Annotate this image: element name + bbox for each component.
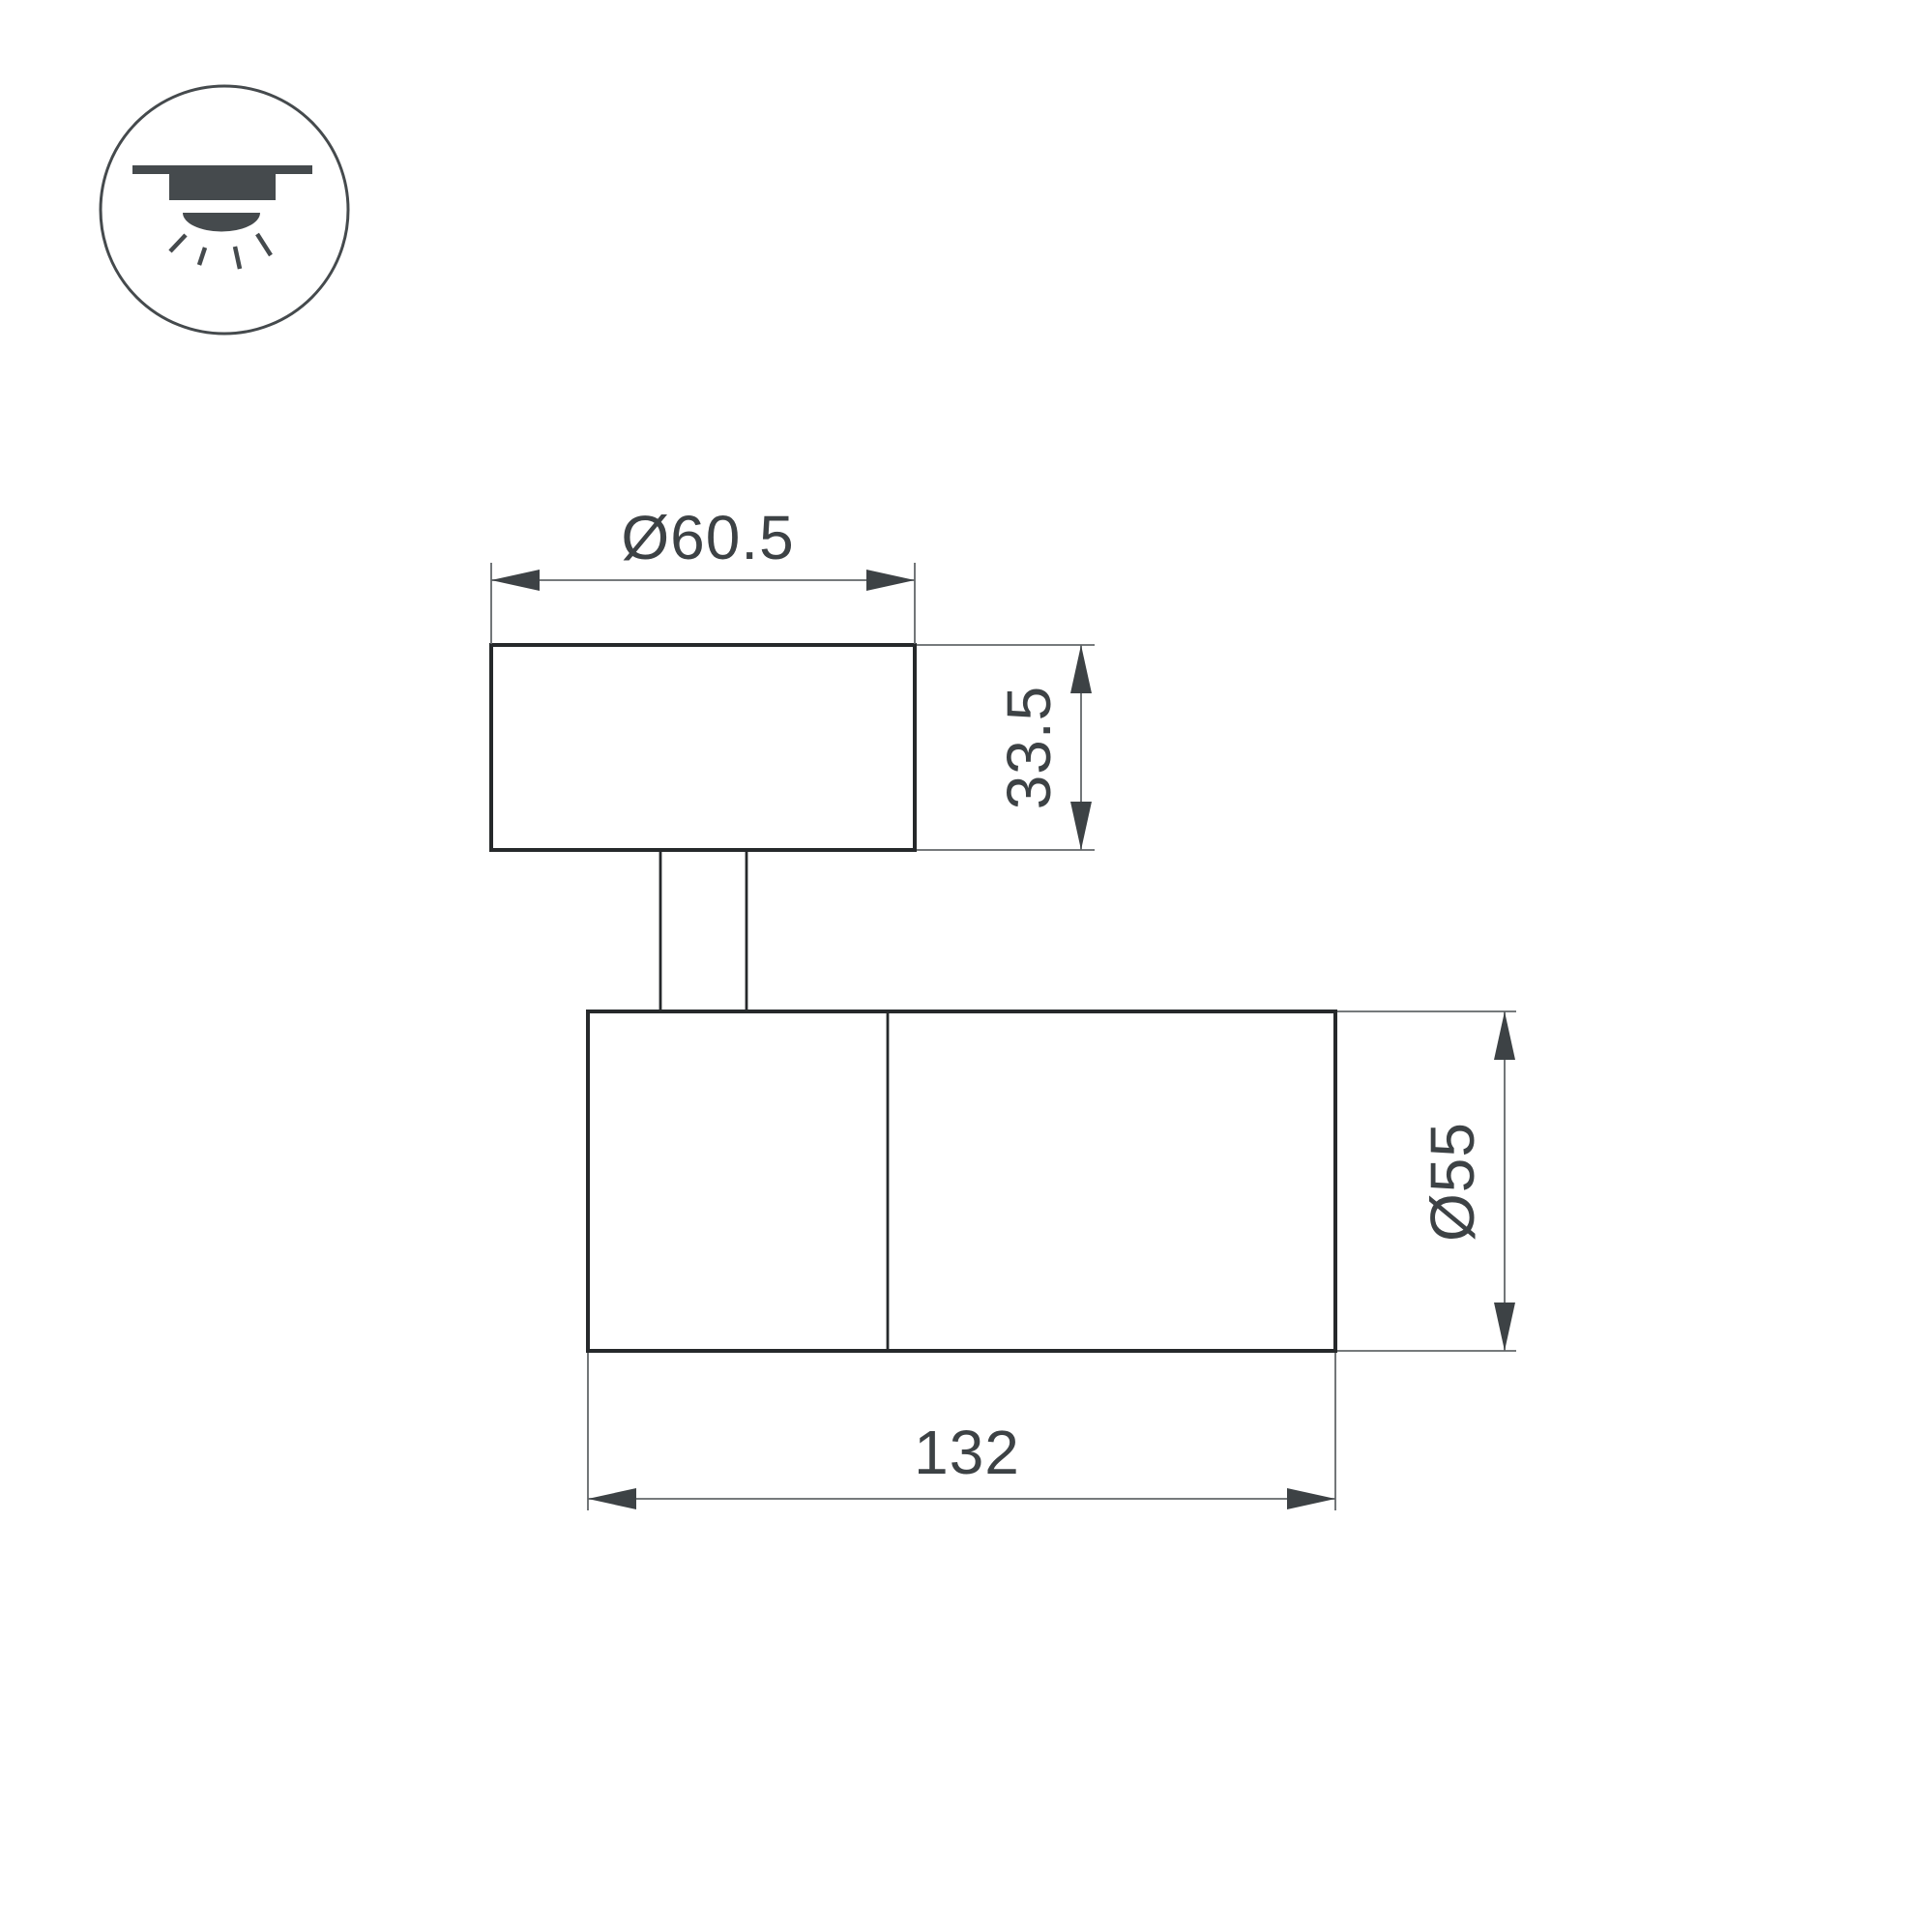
dim-body-diameter: Ø55 [1337,1011,1516,1351]
arrowhead-left [588,1488,636,1509]
icon-luminaire-body [169,165,276,200]
canopy-outline [491,645,915,850]
dim-body-length: 132 [588,1353,1335,1510]
dimension-drawing-page: Ø60.5 33.5 Ø55 132 [0,0,1932,1932]
arrowhead-right [866,570,915,591]
icon-light-ray [235,247,240,269]
dim-canopy-diameter: Ø60.5 [491,503,915,644]
arrowhead-left [491,570,540,591]
icon-circle-border [101,86,348,334]
dim-canopy-height: 33.5 [917,645,1095,850]
arrowhead-up [1494,1011,1515,1060]
luminaire-outline [491,645,1335,1351]
dim-label-canopy-height: 33.5 [994,686,1064,810]
luminaire-dimension-drawing: Ø60.5 33.5 Ø55 132 [0,0,1932,1932]
arrowhead-down [1494,1303,1515,1351]
dim-label-body-length: 132 [914,1418,1020,1487]
icon-light-dome [183,213,260,232]
dim-label-body-diameter: Ø55 [1418,1122,1487,1242]
icon-light-ray [170,235,186,251]
surface-ceiling-mount-icon [101,86,348,334]
arrowhead-right [1287,1488,1335,1509]
dim-label-canopy-diameter: Ø60.5 [621,503,794,572]
arrowhead-up [1070,645,1092,693]
icon-light-ray [199,248,205,265]
arrowhead-down [1070,802,1092,850]
icon-light-ray [257,234,271,255]
body-outline [588,1011,1335,1351]
